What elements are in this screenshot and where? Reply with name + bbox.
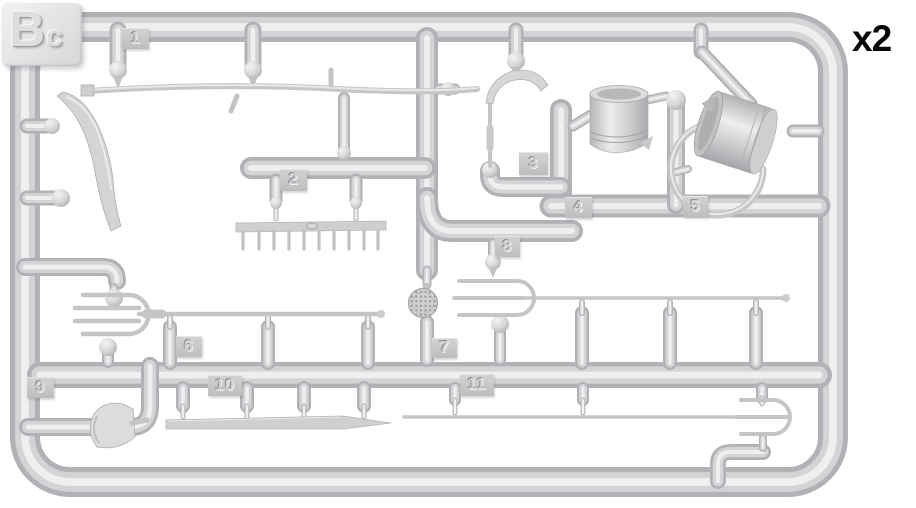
part-tag-number: 2 — [289, 172, 299, 188]
part-tag-2: 2 — [280, 169, 307, 191]
rake-part — [236, 221, 386, 249]
sprue-diagram: Bc x2 1 2 3 4 5 6 7 8 9 10 11 — [0, 0, 916, 508]
part-tag-8: 8 — [495, 236, 520, 257]
part-tag-number: 10 — [215, 378, 235, 394]
part-tag-number: 11 — [468, 377, 487, 393]
part-tag-number: 3 — [529, 156, 539, 172]
part-tag-number: 1 — [131, 31, 141, 47]
pitchfork-3tine-part — [454, 281, 790, 315]
part-tag-4: 4 — [565, 197, 592, 218]
bucket-part — [590, 86, 653, 153]
part-tag-6: 6 — [176, 336, 202, 357]
part-tag-10: 10 — [208, 375, 242, 396]
sprue-code-text: Bc — [2, 2, 82, 54]
sprue-illustration — [0, 0, 916, 508]
part-tag-5: 5 — [683, 196, 708, 217]
part-tag-7: 7 — [432, 338, 457, 358]
part-tag-3: 3 — [519, 152, 548, 175]
sprue-code-plate: Bc — [2, 2, 82, 66]
part-tag-number: 7 — [440, 340, 450, 356]
part-tag-11: 11 — [460, 374, 494, 396]
part-tag-9: 9 — [27, 377, 54, 398]
part-tag-number: 4 — [574, 200, 584, 216]
part-tag-1: 1 — [122, 28, 149, 49]
sprinkler-rose-part — [409, 289, 438, 318]
quantity-label: x2 — [852, 18, 914, 62]
pitchfork-long-part — [404, 400, 790, 434]
part-tag-number: 8 — [503, 239, 513, 255]
scythe-blade-part — [57, 92, 121, 231]
part-tag-number: 6 — [184, 339, 194, 355]
part-tag-number: 9 — [36, 380, 46, 396]
part-tag-number: 5 — [691, 199, 701, 215]
plank-part — [166, 416, 391, 429]
